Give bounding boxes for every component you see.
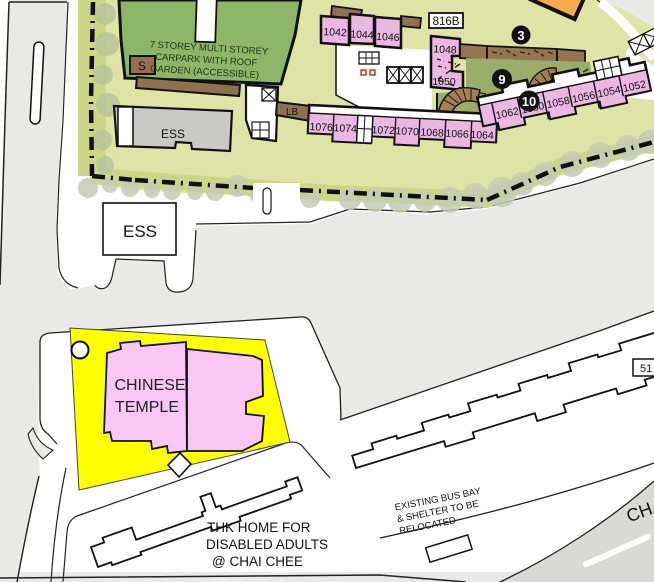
svg-text:1068: 1068: [420, 126, 444, 139]
svg-text:LB: LB: [286, 107, 299, 118]
svg-text:9: 9: [498, 72, 505, 87]
svg-text:1064: 1064: [470, 129, 494, 142]
svg-text:1074: 1074: [333, 122, 357, 135]
svg-text:@ CHAI CHEE: @ CHAI CHEE: [212, 554, 303, 569]
svg-text:1046: 1046: [376, 31, 400, 44]
svg-text:1066: 1066: [445, 128, 469, 141]
svg-text:1076: 1076: [309, 121, 333, 134]
svg-text:1042: 1042: [323, 26, 347, 39]
svg-text:1072: 1072: [371, 124, 395, 137]
svg-text:3: 3: [517, 28, 524, 43]
svg-text:TEMPLE: TEMPLE: [115, 399, 179, 416]
svg-text:816B: 816B: [433, 16, 460, 28]
svg-text:ESS: ESS: [161, 127, 185, 141]
svg-text:CHINESE: CHINESE: [114, 377, 185, 394]
svg-text:51: 51: [640, 363, 652, 375]
svg-text:DISABLED ADULTS: DISABLED ADULTS: [206, 537, 328, 552]
svg-text:1050: 1050: [432, 76, 456, 88]
svg-text:1070: 1070: [395, 125, 419, 138]
svg-text:ESS: ESS: [123, 222, 157, 241]
svg-text:1048: 1048: [433, 43, 457, 56]
svg-text:S: S: [138, 59, 146, 73]
svg-text:10: 10: [522, 94, 536, 109]
svg-text:1044: 1044: [350, 29, 374, 42]
svg-text:THK HOME FOR: THK HOME FOR: [207, 520, 311, 535]
